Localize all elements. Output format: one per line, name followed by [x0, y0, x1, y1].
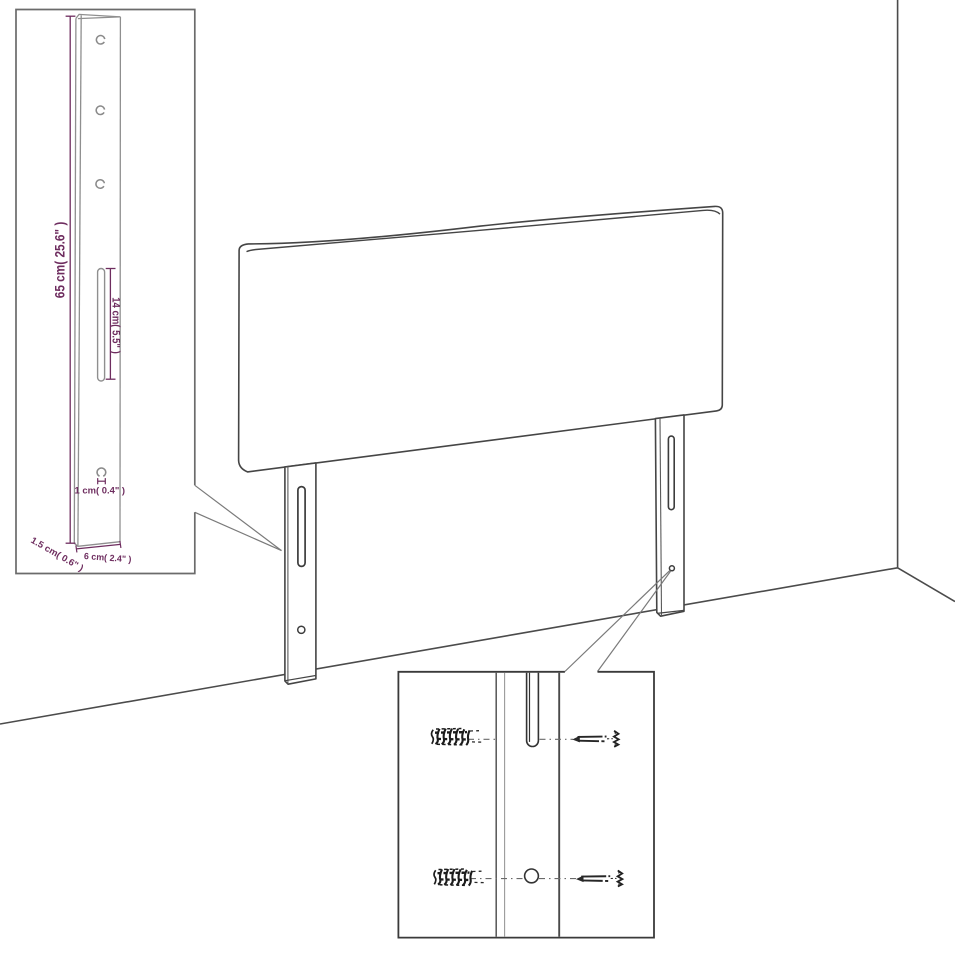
svg-text:14 cm( 5.5" ): 14 cm( 5.5" )	[110, 297, 122, 354]
svg-text:65 cm( 25.6" ): 65 cm( 25.6" )	[51, 222, 67, 299]
svg-text:1 cm( 0.4" ): 1 cm( 0.4" )	[75, 486, 126, 496]
